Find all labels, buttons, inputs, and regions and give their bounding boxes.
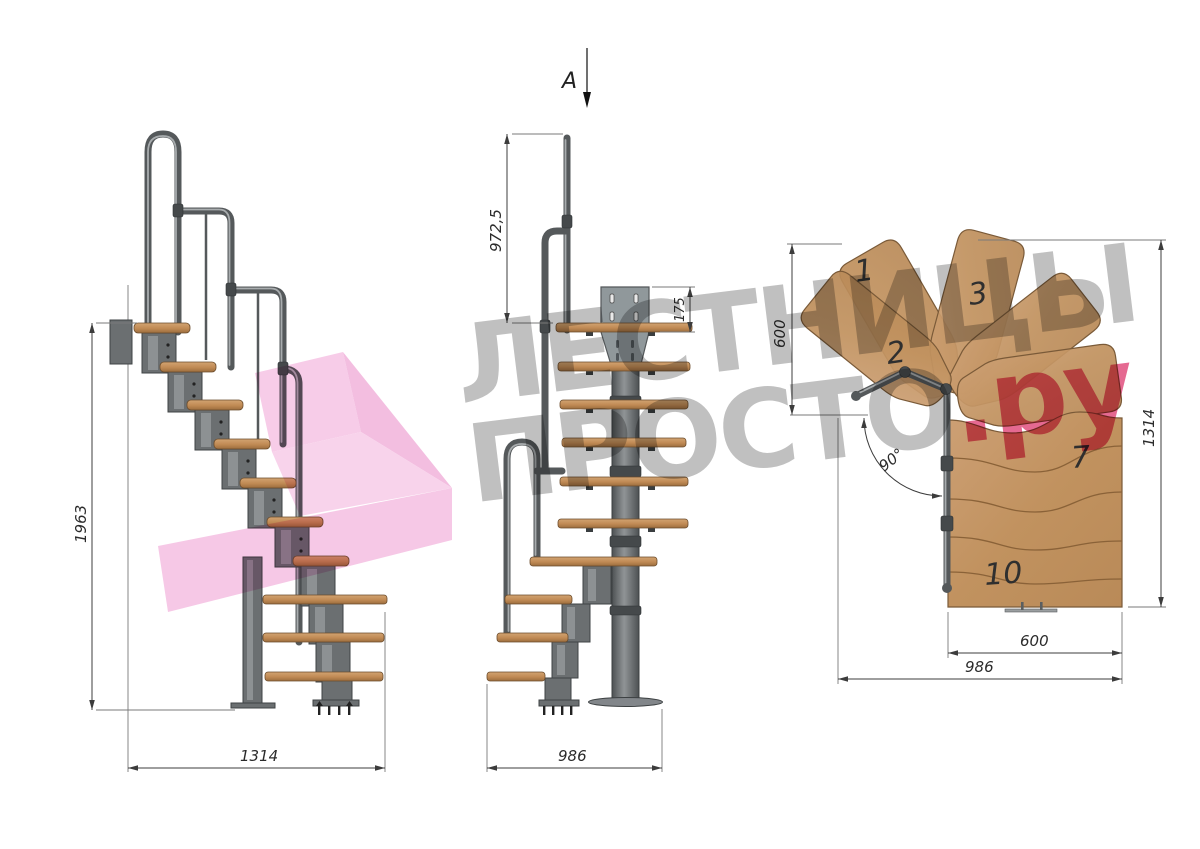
dim-plate-label: 175 [673, 297, 688, 322]
plan-view: 1 2 3 7 10 600 1314 600 [771, 227, 1166, 684]
dim-plan-left-label: 600 [771, 319, 789, 348]
section-arrow-icon [583, 92, 591, 108]
wall-bracket [110, 320, 132, 364]
section-marker-label: A [560, 69, 577, 94]
section-view: A [487, 48, 695, 772]
front-treads [487, 323, 692, 715]
dim-plan-bottom-inner-label: 600 [1020, 632, 1049, 650]
dim-side-height-label: 1963 [72, 505, 90, 543]
dimension-plan-angle: 90° [790, 415, 942, 496]
anchor-bolts [543, 706, 572, 715]
dimension-side-height: 1963 [72, 323, 235, 710]
dim-plan-angle-label: 90° [875, 445, 907, 476]
support-base [231, 703, 275, 708]
dim-plan-right-label: 1314 [1140, 409, 1158, 447]
side-steps [134, 323, 387, 715]
step-label-7: 7 [1070, 440, 1091, 476]
plan-straight-run [948, 412, 1122, 607]
step-label-10: 10 [983, 555, 1024, 593]
dim-front-width-label: 986 [558, 747, 587, 765]
section-marker-a: A [560, 48, 591, 108]
column-base [589, 698, 663, 707]
dim-side-width-label: 1314 [240, 747, 278, 765]
drawing-canvas: 1963 1314 A [0, 0, 1200, 849]
side-elevation-view: 1963 1314 [72, 134, 387, 772]
dim-rail-height-label: 972,5 [487, 209, 505, 252]
stair-technical-drawing: 1963 1314 A [0, 0, 1200, 849]
dim-plan-bottom-outer-label: 986 [965, 658, 994, 676]
